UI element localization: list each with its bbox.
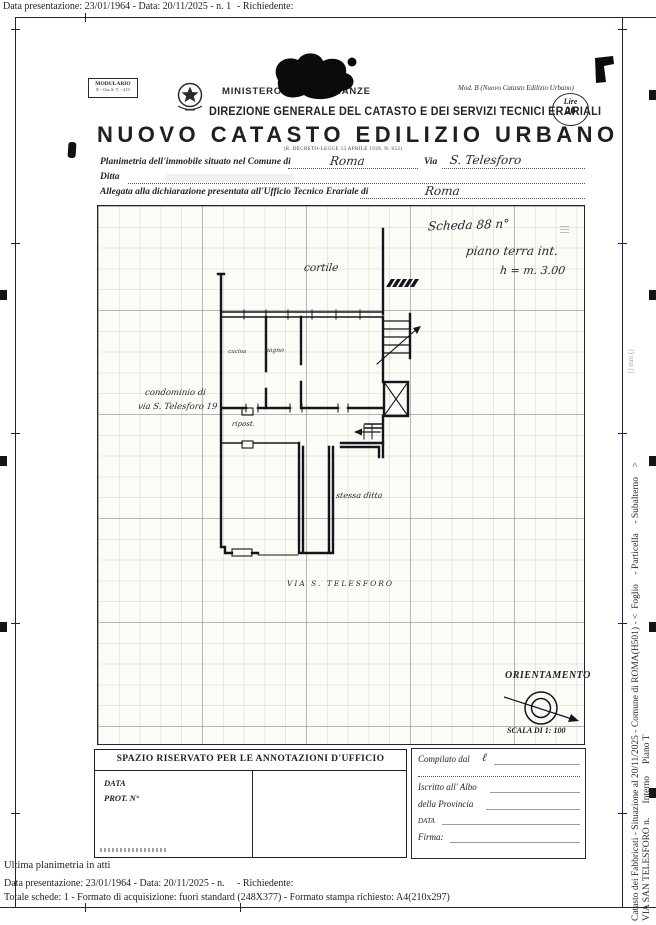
side-caption-catasto: Catasto dei Fabbricati - Situazione al 2… bbox=[631, 462, 641, 921]
footer-richiedente: - Richiedente: bbox=[237, 878, 293, 889]
scale-label: SCALA DI 1: 100 bbox=[507, 726, 565, 735]
comune-value: Roma bbox=[329, 154, 366, 168]
side-caption-via: VIA SAN TELESFORO n. Interno Piano T bbox=[642, 735, 652, 921]
footer-totale-line: Totale schede: 1 - Formato di acquisizio… bbox=[4, 892, 450, 903]
condominio-note-line2: via S. Telesforo 19 bbox=[137, 402, 218, 412]
faint-smudge bbox=[165, 174, 295, 182]
field-line bbox=[486, 809, 580, 810]
ink-blot bbox=[262, 50, 360, 102]
annotations-data-label: DATA bbox=[104, 778, 126, 788]
faint-smudge bbox=[560, 226, 569, 227]
stamp-lire-label: Lire bbox=[553, 98, 588, 106]
ultima-planimetria-text: Ultima planimetria in atti bbox=[4, 860, 110, 871]
condominio-note-line1: condominio di bbox=[144, 388, 206, 398]
crop-tick bbox=[240, 903, 241, 912]
via-field-line bbox=[442, 168, 585, 169]
modulario-box: MODULARIO F. - Gn. S. T. - 213 bbox=[88, 78, 138, 98]
cortile-label: cortile bbox=[303, 262, 339, 274]
crop-tick bbox=[85, 903, 86, 912]
ink-blot bbox=[592, 55, 616, 85]
room-label-kitchen: cucina bbox=[228, 349, 247, 355]
firma-label: Firma: bbox=[418, 832, 444, 842]
frame-line-right bbox=[622, 17, 623, 907]
ufficio-value: Roma bbox=[424, 184, 461, 198]
state-emblem-icon bbox=[173, 80, 207, 116]
frame-line-left bbox=[15, 17, 16, 907]
street-label: VIA S. TELESFORO bbox=[287, 579, 394, 588]
room-label-bath: bagno bbox=[265, 347, 285, 354]
ufficio-label: Allegata alla dichiarazione presentata a… bbox=[100, 187, 368, 197]
ditta-field-line bbox=[128, 183, 585, 184]
compilato-box: Compilato dal ℓ Iscritto all' Albo della… bbox=[411, 748, 586, 859]
annotations-prot-label: PROT. N° bbox=[104, 793, 139, 803]
modulario-code: F. - Gn. S. T. - 213 bbox=[89, 87, 137, 92]
document-title: NUOVO CATASTO EDILIZIO URBANO bbox=[97, 122, 589, 148]
crop-tick bbox=[11, 623, 20, 624]
provincia-label: della Provincia bbox=[418, 799, 473, 809]
field-line bbox=[442, 824, 580, 825]
height-note: h = m. 3.00 bbox=[499, 264, 566, 277]
crop-tick bbox=[11, 243, 20, 244]
crop-tick bbox=[618, 433, 627, 434]
ink-blot bbox=[67, 142, 76, 159]
compilato-hand-mark: ℓ bbox=[481, 751, 487, 764]
crop-tick bbox=[618, 623, 627, 624]
frame-line-bottom bbox=[0, 907, 656, 908]
floor-plan-drawing bbox=[98, 206, 586, 746]
edge-mark bbox=[649, 456, 656, 466]
orientation-label: ORIENTAMENTO bbox=[505, 670, 591, 681]
frame-line-top bbox=[15, 17, 656, 18]
crop-tick bbox=[618, 29, 627, 30]
compilato-data-label: DATA bbox=[418, 817, 435, 825]
field-line bbox=[490, 792, 580, 793]
comune-field-line bbox=[288, 168, 418, 169]
compass-arrowhead bbox=[568, 714, 579, 722]
top-bar-richiedente: - Richiedente: bbox=[237, 1, 293, 12]
entry-arrowhead bbox=[354, 429, 362, 436]
iscritto-label: Iscritto all' Albo bbox=[418, 782, 477, 792]
edge-mark bbox=[0, 456, 7, 466]
direzione-title: DIREZIONE GENERALE DEL CATASTO E DEI SER… bbox=[209, 104, 601, 118]
scheda-note: Scheda 88 n° bbox=[427, 217, 509, 234]
edge-mark bbox=[0, 622, 7, 632]
field-line bbox=[450, 842, 580, 843]
stessa-ditta-note: stessa ditta bbox=[335, 491, 383, 500]
stair-arrowhead bbox=[413, 326, 421, 334]
annotations-box: SPAZIO RISERVATO PER LE ANNOTAZIONI D'UF… bbox=[94, 749, 407, 858]
ditta-label: Ditta bbox=[100, 172, 120, 182]
crop-tick bbox=[11, 813, 20, 814]
document-subtitle: (R. DECRETO-LEGGE 13 APRILE 1939, N. 652… bbox=[97, 147, 589, 152]
edge-mark bbox=[649, 622, 656, 632]
side-caption-faint: [] mm () bbox=[627, 349, 635, 373]
field-line bbox=[494, 764, 580, 765]
printer-imprint bbox=[100, 848, 168, 852]
annotations-header: SPAZIO RISERVATO PER LE ANNOTAZIONI D'UF… bbox=[95, 750, 406, 771]
scanned-cadastral-document: Data presentazione: 23/01/1964 - Data: 2… bbox=[0, 0, 656, 925]
comune-label: Planimetria dell'immobile situato nel Co… bbox=[100, 157, 291, 167]
floor-plan-panel: Scheda 88 n° piano terra int. h = m. 3.0… bbox=[97, 205, 585, 745]
footer-data-line: Data presentazione: 23/01/1964 - Data: 2… bbox=[4, 878, 225, 889]
edge-mark bbox=[649, 90, 656, 100]
crop-tick bbox=[85, 13, 86, 22]
crop-tick bbox=[11, 29, 20, 30]
crop-tick bbox=[618, 813, 627, 814]
mod-b-caption: Mod. B (Nuovo Catasto Edilizio Urbano) bbox=[458, 84, 574, 92]
annotations-divider bbox=[252, 771, 253, 857]
compilato-label: Compilato dal bbox=[418, 754, 470, 764]
via-value: S. Telesforo bbox=[449, 153, 522, 167]
compass-icon bbox=[504, 692, 572, 724]
stamp-value: 20 bbox=[553, 106, 588, 117]
ufficio-field-line bbox=[360, 198, 585, 199]
crop-tick bbox=[618, 243, 627, 244]
field-line bbox=[418, 776, 580, 777]
top-bar-text: Data presentazione: 23/01/1964 - Data: 2… bbox=[3, 1, 231, 12]
via-label: Via bbox=[424, 157, 437, 167]
crop-tick bbox=[11, 433, 20, 434]
edge-mark bbox=[649, 290, 656, 300]
floor-note: piano terra int. bbox=[465, 244, 559, 258]
room-label-storage: ripost. bbox=[232, 420, 256, 428]
edge-mark bbox=[0, 290, 7, 300]
